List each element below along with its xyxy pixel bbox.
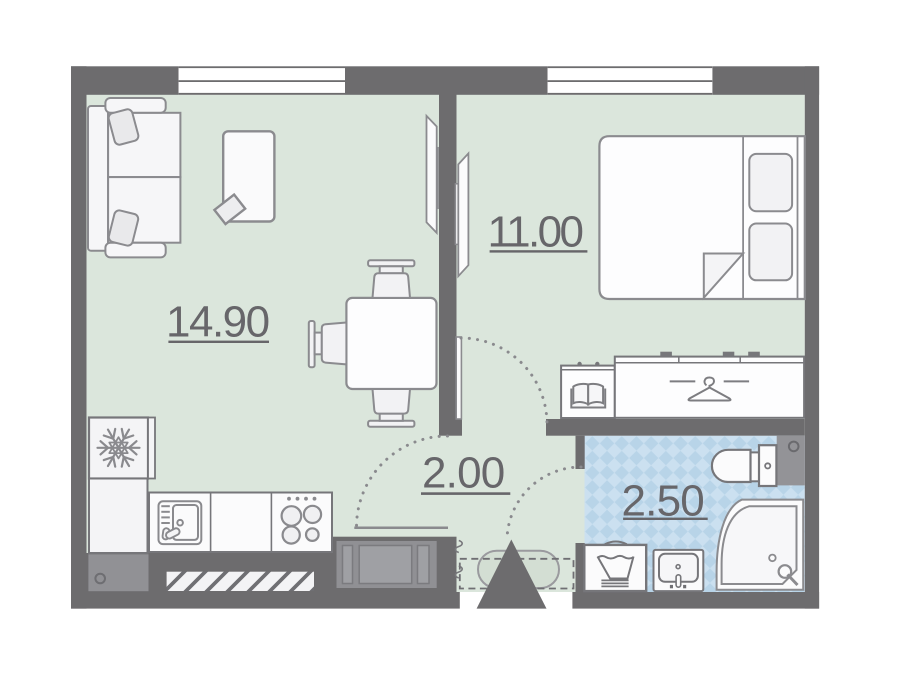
svg-text:11.00: 11.00 (488, 208, 583, 257)
svg-text:14.90: 14.90 (166, 298, 269, 347)
svg-text:2.00: 2.00 (422, 449, 504, 498)
